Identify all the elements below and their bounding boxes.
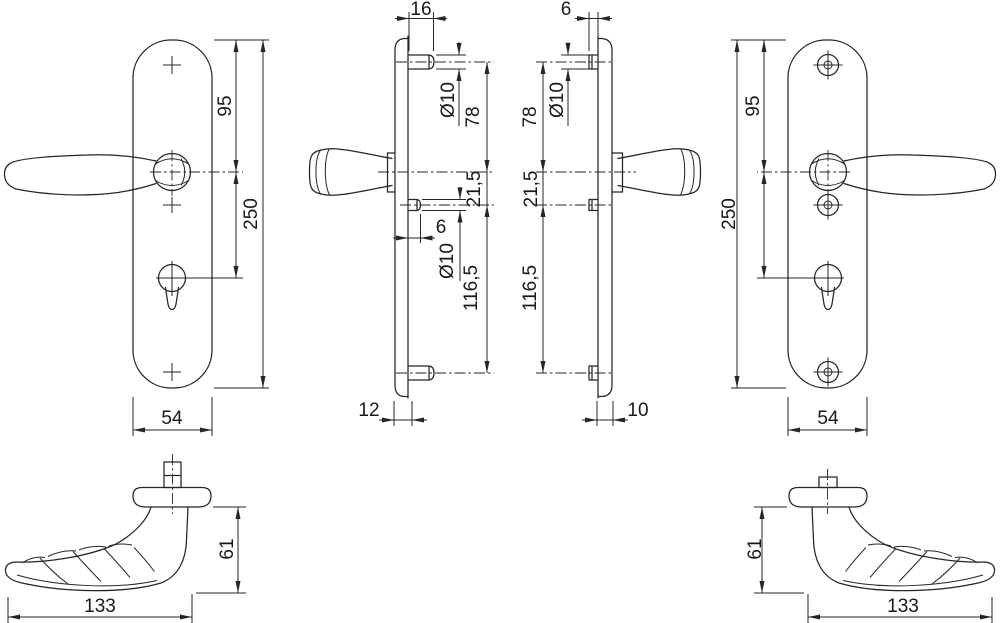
- technical-drawing-page: 95 250 54: [0, 0, 1000, 623]
- dim-label-top-stud-length: 16: [410, 0, 431, 20]
- dim-label-top-to-handle: 95: [215, 95, 236, 116]
- dim-label-stud-to-handle: 78: [520, 106, 541, 127]
- dim-label-stud-to-handle: 78: [463, 106, 484, 127]
- dim-label-handle-height: 61: [217, 538, 238, 559]
- dim-label-top-stud-length: 6: [561, 0, 572, 20]
- dim-label-mid-stud-diameter: Ø10: [437, 243, 458, 279]
- dim-label-plate-width: 54: [817, 408, 839, 429]
- dim-label-handle-height: 61: [745, 538, 766, 559]
- dim-label-total-height: 250: [241, 198, 262, 230]
- door-handle-technical-drawing: 95 250 54: [0, 0, 1000, 623]
- dim-label-total-height: 250: [719, 198, 740, 230]
- dim-label-handle-to-mid-stud: 21,5: [464, 171, 485, 208]
- dim-label-mid-to-bottom-stud: 116,5: [461, 265, 482, 311]
- dim-label-plate-depth: 12: [358, 400, 379, 421]
- dim-label-handle-to-mid-stud: 21,5: [521, 171, 542, 208]
- dim-label-top-stud-diameter: Ø10: [547, 82, 568, 118]
- dim-label-top-stud-diameter: Ø10: [438, 82, 459, 118]
- dim-label-plate-depth: 10: [627, 400, 648, 421]
- dim-label-handle-length: 133: [84, 596, 116, 617]
- dim-label-handle-length: 133: [887, 596, 919, 617]
- drawing-background: [0, 0, 1000, 623]
- dim-label-mid-to-bottom-stud: 116,5: [520, 265, 541, 311]
- dim-label-mid-stud-length: 6: [436, 217, 447, 238]
- dim-label-top-to-handle: 95: [743, 95, 764, 116]
- dim-label-plate-width: 54: [161, 408, 183, 429]
